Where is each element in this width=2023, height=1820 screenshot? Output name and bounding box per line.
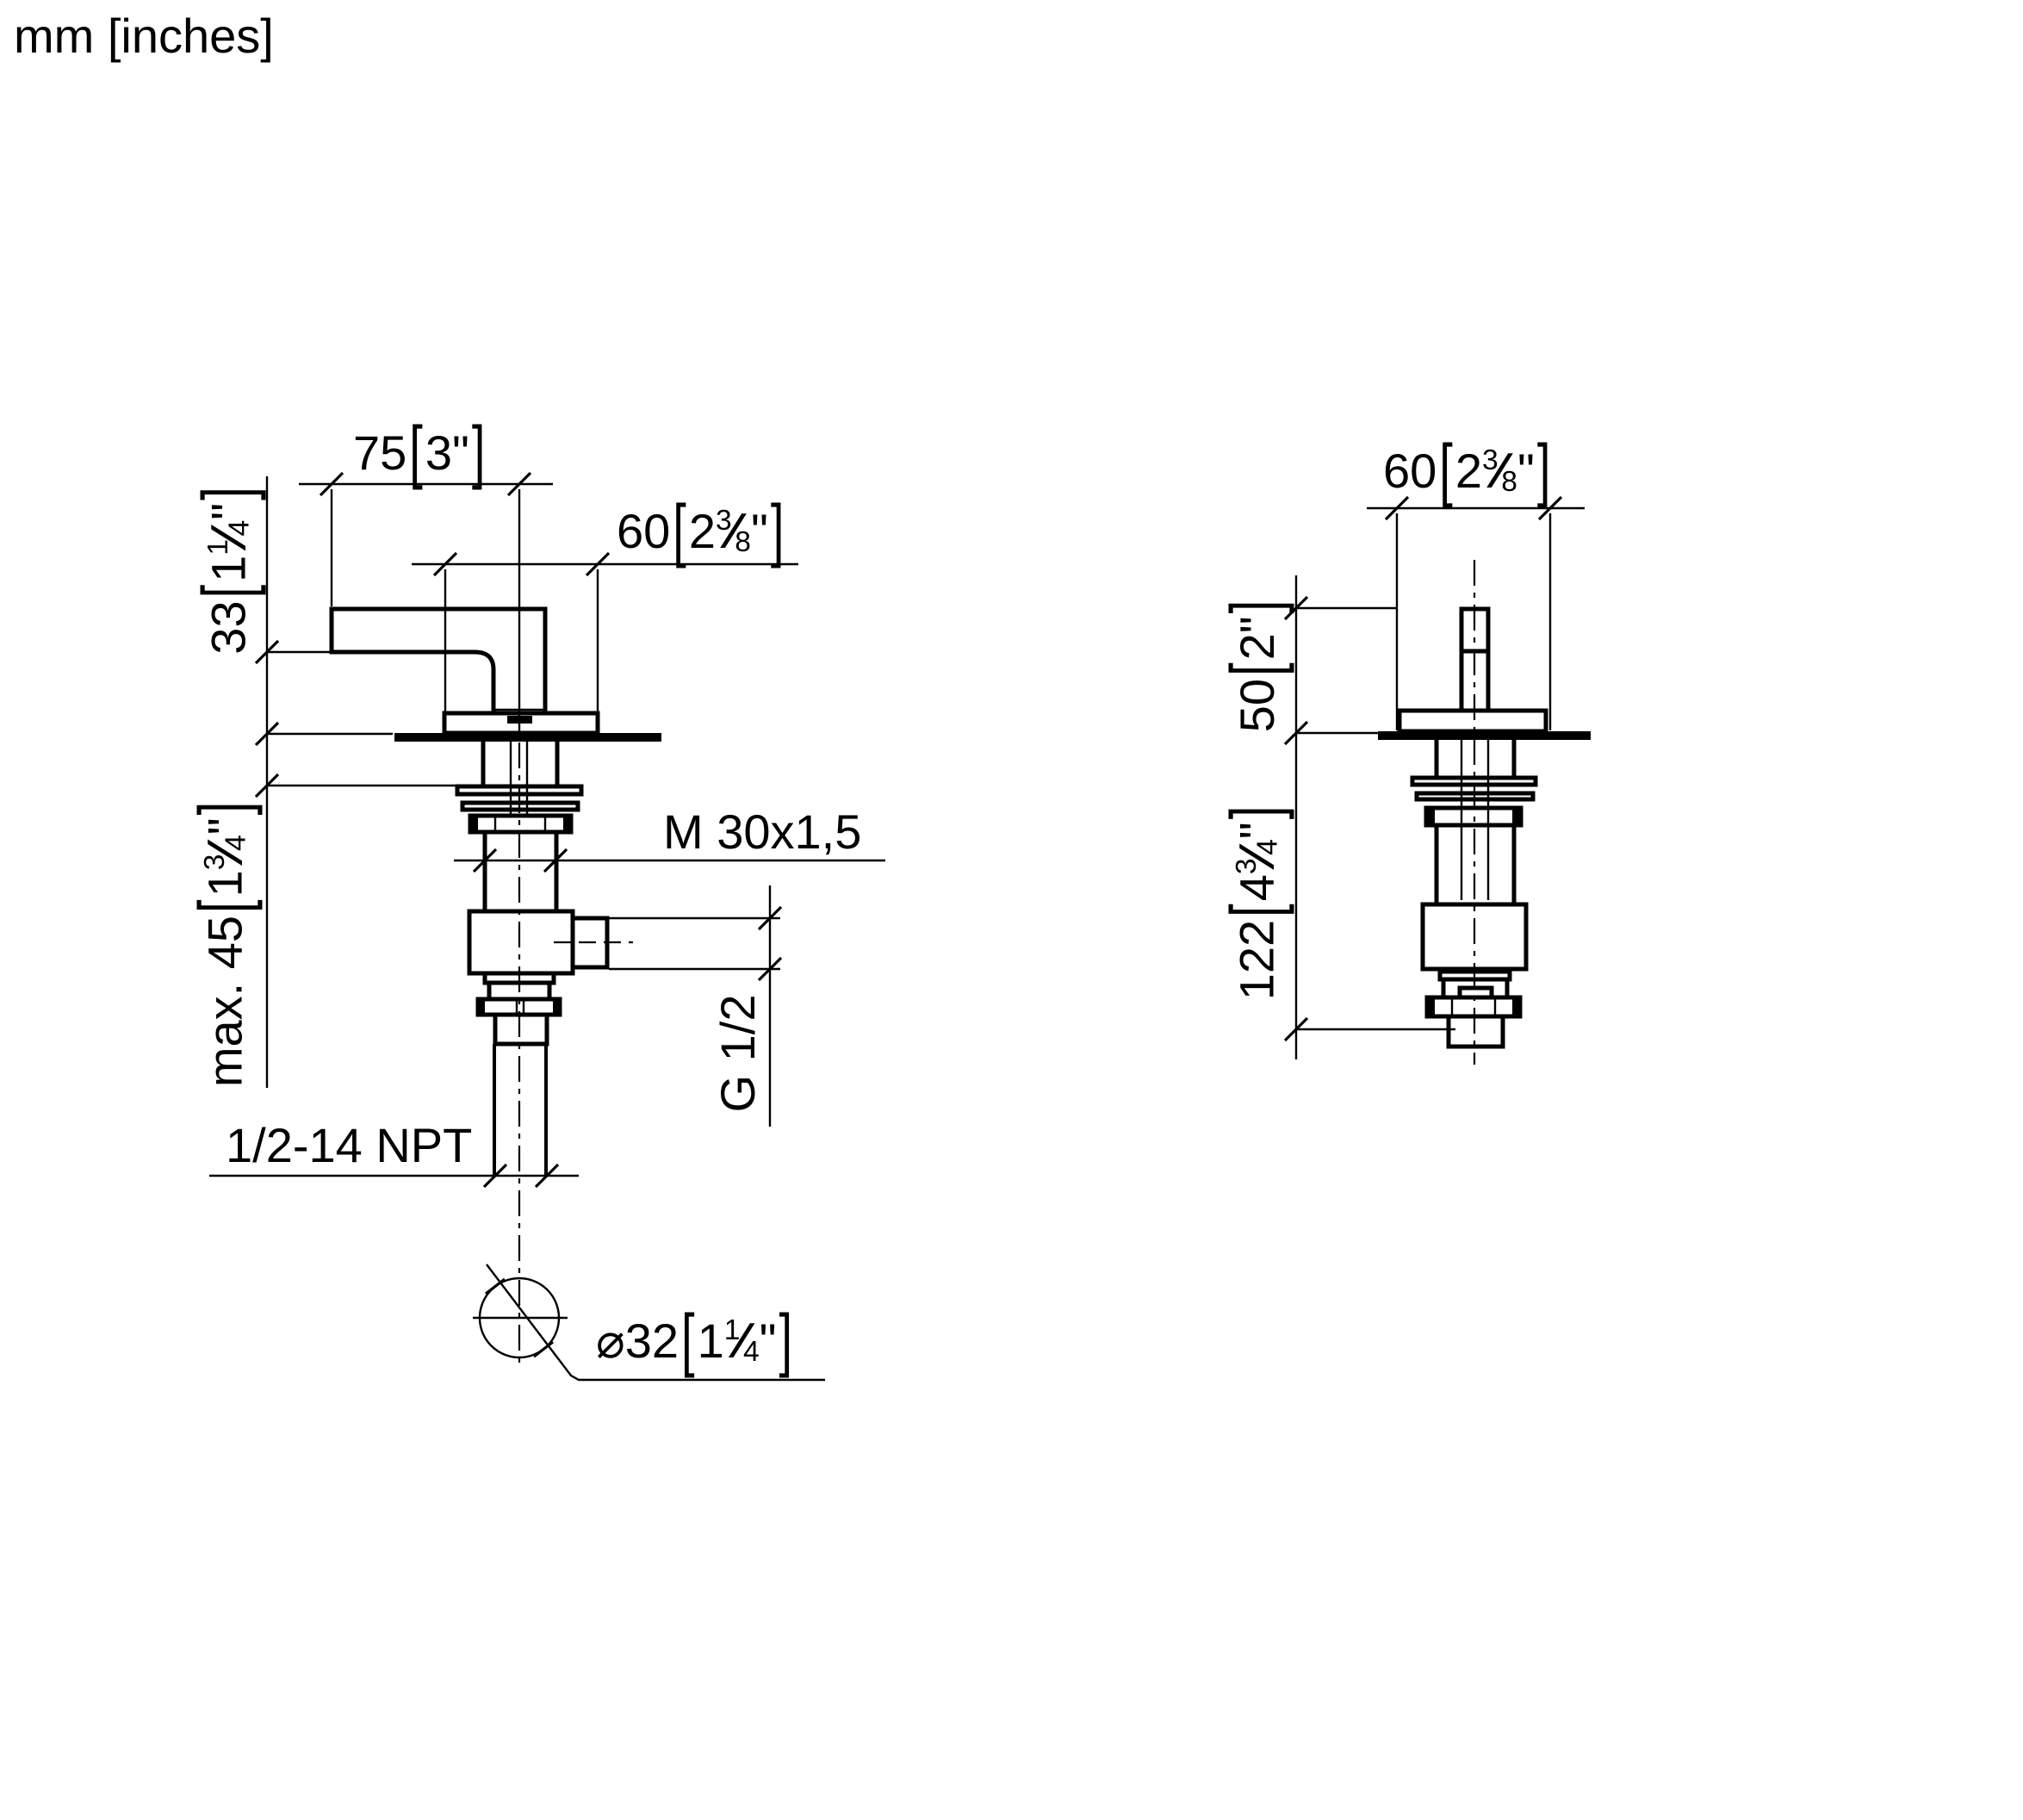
escutcheon-mark [507, 716, 532, 724]
inlet-thread-label: 1/2-14 NPT [226, 1121, 472, 1170]
outlet-thread-label: G 1/2 [714, 995, 762, 1113]
dim-total-depth-label: 122[43⁄4"] [1232, 804, 1282, 1001]
side-view-part-outline [332, 609, 661, 1175]
mounting-nut [470, 816, 571, 832]
dim-projection-label: 75[3"] [353, 429, 487, 477]
front-view-part-outline [1378, 609, 1591, 1047]
technical-drawing-page: mm [inches] 75[3"] 60[23⁄8"] 33[11⁄4"] m… [0, 0, 2023, 1820]
lever-handle-outline [332, 609, 545, 713]
units-label: mm [inches] [14, 12, 274, 60]
dim-stem-height-label: 50[2"] [1233, 598, 1281, 732]
dim-max-deck-thickness-label: max. 45[13⁄4"] [201, 799, 251, 1087]
dim-handle-width-label: 60[23⁄8"] [617, 506, 786, 556]
drawing-linework [0, 0, 2023, 1820]
dim-height-above-deck-label: 33[11⁄4"] [204, 484, 254, 654]
front-escutcheon [1399, 711, 1546, 731]
mounting-thread-label: M 30x1,5 [663, 808, 861, 856]
dim-front-width-label: 60[23⁄8"] [1383, 446, 1553, 496]
side-view-drawing [209, 473, 885, 1380]
front-view-drawing [1285, 497, 1591, 1065]
hole-diameter-label: ⌀32[11⁄4"] [596, 1316, 795, 1366]
